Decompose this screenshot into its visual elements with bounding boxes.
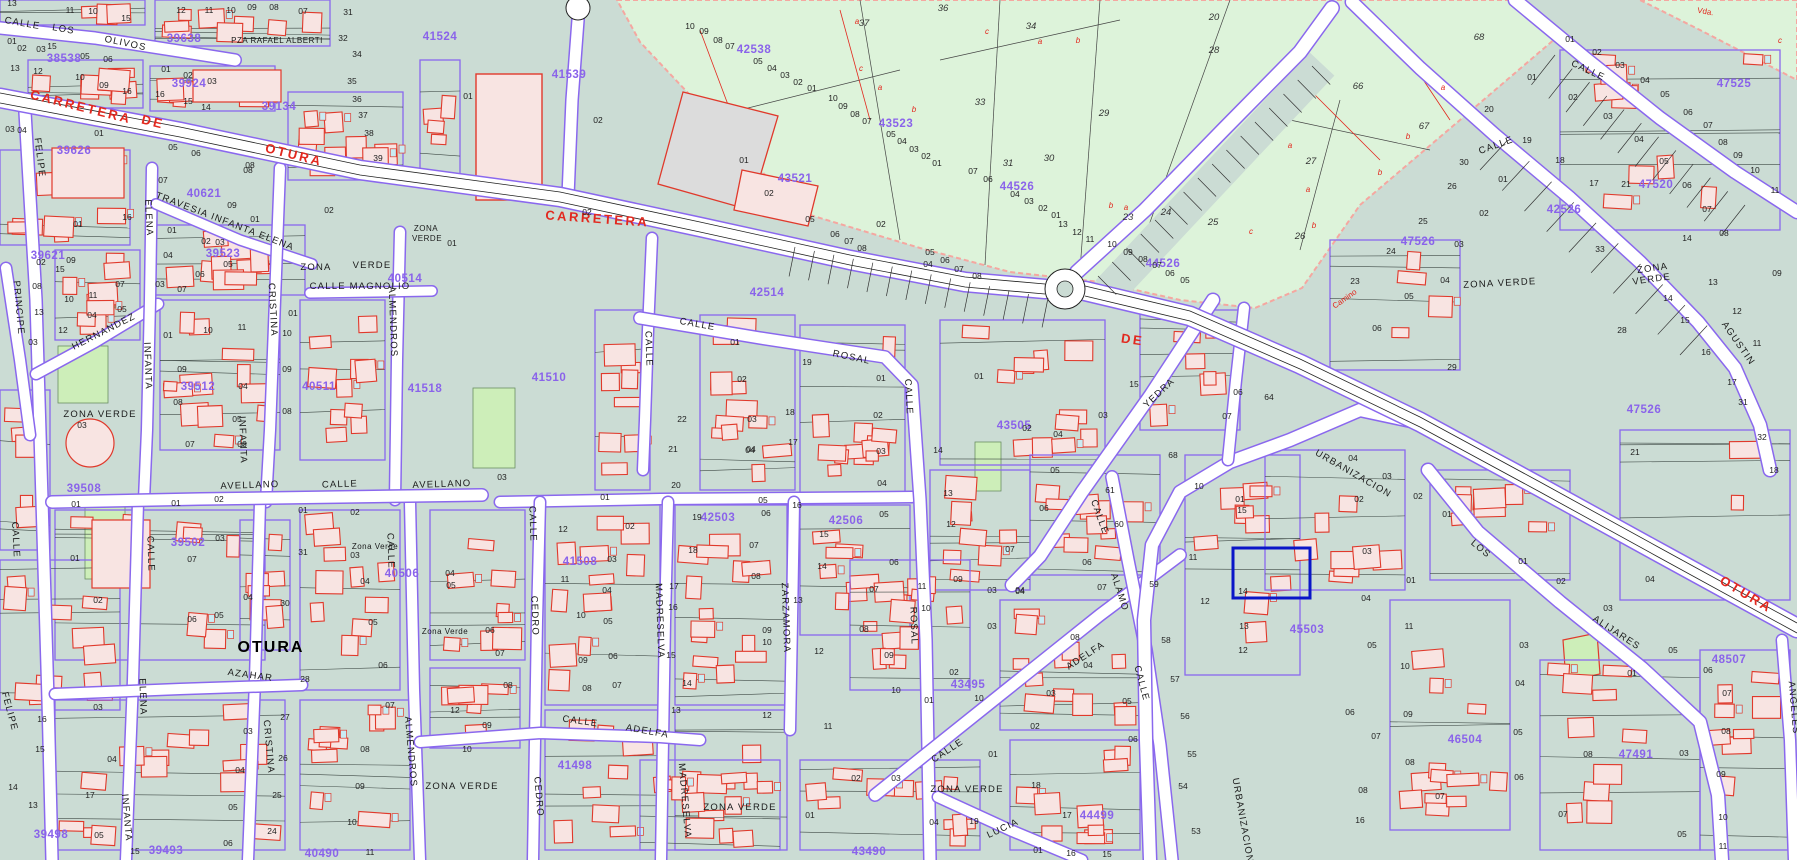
pool [1274, 487, 1280, 495]
parcel-number: 09 [578, 655, 588, 665]
parcel-number: 11 [824, 721, 833, 731]
street-label: ZONA VERDE [703, 802, 776, 813]
parcel-number: 06 [378, 660, 388, 670]
building [1053, 689, 1073, 702]
pool [1077, 439, 1083, 447]
building [719, 828, 733, 843]
street-label: CALLE [526, 506, 538, 542]
block-id-label: 39508 [67, 483, 102, 495]
building [1529, 522, 1547, 532]
building [1752, 697, 1780, 719]
building [601, 373, 619, 390]
parcel-number: 08 [243, 165, 253, 175]
parcel-number: 08 [282, 406, 292, 416]
parcel-number: 12 [946, 519, 956, 529]
parcel-number: 12 [1238, 645, 1248, 655]
parcel-number: 03 [987, 585, 997, 595]
cadastral-map[interactable]: CALLELOSOLIVOSPZA RAFAEL ALBERTIFELIPEPR… [0, 0, 1797, 860]
parcel-number: 08 [713, 35, 723, 45]
parcel-number: 14 [933, 445, 943, 455]
parcel-number: 11 [1086, 234, 1095, 244]
street-label: ROSAL [907, 607, 919, 646]
rural-parcel-number: 33 [975, 97, 986, 108]
building [268, 20, 287, 36]
building [358, 811, 391, 827]
pool [462, 639, 468, 647]
building [952, 814, 967, 836]
street-label: AVELLANO [220, 479, 279, 492]
parcel-number: 05 [94, 830, 104, 840]
parcel-number: 01 [730, 337, 740, 347]
building [1194, 535, 1218, 550]
parcel-number: 02 [214, 494, 224, 504]
parcel-number: 05 [228, 802, 238, 812]
parcel-number: 23 [1350, 276, 1360, 286]
building [828, 464, 842, 476]
parcel-number: 06 [485, 625, 495, 635]
parcel-number: 03 [93, 702, 103, 712]
parcel-number: 59 [1149, 579, 1159, 589]
parcel-number: 03 [891, 773, 901, 783]
street-label: VERDE [353, 260, 392, 271]
building [1294, 539, 1318, 561]
parcel-number: 04 [1640, 75, 1650, 85]
parcel-number: 08 [1358, 785, 1368, 795]
parcel-number: 02 [1022, 423, 1032, 433]
parcel-number: 14 [8, 782, 18, 792]
parcel-number: 20 [1484, 104, 1494, 114]
building [592, 805, 619, 823]
parcel-number: 03 [607, 554, 617, 564]
street[interactable] [500, 497, 912, 502]
block-id-label: 39498 [34, 829, 69, 841]
parcel-number: 03 [1024, 196, 1034, 206]
pool [1145, 503, 1151, 511]
parcel-number: 08 [1070, 632, 1080, 642]
block-id-label: 43490 [852, 846, 886, 858]
building [1563, 674, 1593, 695]
building [1150, 404, 1168, 426]
building [872, 428, 897, 443]
parcel-number: 03 [1603, 111, 1613, 121]
building [1065, 341, 1093, 361]
pool [325, 793, 331, 801]
parcel-number: 10 [64, 294, 74, 304]
building [493, 627, 522, 649]
parcel-number: 07 [177, 284, 187, 294]
building [1250, 486, 1272, 497]
parcel-number: 06 [830, 229, 840, 239]
building [1412, 649, 1445, 670]
parcel-number: 15 [183, 96, 193, 106]
block-id-label: 41524 [423, 31, 458, 43]
rural-subparcel-letter: a [878, 83, 883, 92]
parcel-number: 07 [612, 680, 622, 690]
pool [1481, 775, 1487, 783]
parcel-number: 09 [1123, 247, 1133, 257]
parcel-number: 10 [762, 637, 772, 647]
parcel-number: 03 [28, 337, 38, 347]
parcel-number: 17 [1062, 810, 1072, 820]
rural-subparcel-letter: c [859, 64, 863, 73]
parcel-number: 06 [1082, 557, 1092, 567]
building [163, 381, 177, 391]
parcel-number: 18 [688, 545, 698, 555]
parcel-number: 03 [215, 533, 225, 543]
parcel-number: 04 [445, 568, 455, 578]
parcel-number: 07 [749, 540, 759, 550]
rural-parcel-number: 25 [1207, 217, 1219, 228]
block-id-label: 44499 [1080, 810, 1114, 822]
block-id-label: 40490 [305, 848, 339, 860]
parcel-number: 08 [1719, 228, 1729, 238]
rural-subparcel-letter: c [985, 27, 989, 36]
parcel-number: 08 [582, 683, 592, 693]
parcel-number: 07 [385, 700, 395, 710]
parcel-number: 24 [267, 826, 277, 836]
parcel-number: 06 [608, 651, 618, 661]
parcel-number: 02 [851, 773, 861, 783]
block-id-label: 38538 [47, 53, 82, 65]
road-name-label: DE [1120, 331, 1145, 349]
parcel-number: 05 [1367, 640, 1377, 650]
parcel-number: 01 [932, 158, 942, 168]
parcel-number: 07 [298, 6, 308, 16]
building [1567, 803, 1583, 823]
pool [28, 588, 34, 596]
parcel-number: 10 [282, 328, 292, 338]
building [355, 359, 377, 383]
building [1593, 689, 1617, 700]
rural-subparcel-letter: b [1076, 36, 1081, 45]
pool [1634, 196, 1640, 204]
parcel-number: 18 [1031, 780, 1041, 790]
building [1568, 717, 1594, 737]
block-id-label: 39638 [167, 33, 202, 45]
parcel-number: 11 [918, 581, 927, 591]
block-id-label: 41539 [552, 69, 586, 81]
building [1064, 537, 1088, 552]
block-id-label: 41498 [558, 760, 593, 772]
parcel-number: 06 [187, 614, 197, 624]
parcel-number: 09 [762, 625, 772, 635]
building [608, 765, 628, 779]
parcel-number: 61 [1105, 485, 1115, 495]
parcel-number: 03 [987, 621, 997, 631]
parcel-number: 05 [232, 414, 242, 424]
roundabout[interactable] [566, 0, 590, 20]
parcel-number: 10 [1718, 812, 1728, 822]
block-id-label: 47491 [1619, 749, 1654, 761]
building [599, 433, 621, 452]
parcel-number: 09 [177, 364, 187, 374]
parcel-number: 08 [1718, 137, 1728, 147]
parcel-number: 01 [167, 225, 177, 235]
pool [769, 417, 775, 425]
building [1407, 251, 1421, 270]
parcel-number: 10 [1400, 661, 1410, 671]
parcel-number: 08 [1405, 757, 1415, 767]
block-id-label: 42503 [701, 512, 735, 524]
building [197, 405, 222, 427]
parcel-number: 12 [1732, 306, 1742, 316]
rural-parcel-number: 67 [1419, 121, 1430, 132]
parcel-number: 07 [158, 175, 168, 185]
building [227, 535, 240, 557]
building [1490, 772, 1508, 791]
building [943, 550, 961, 564]
parcel-number: 04 [923, 259, 933, 269]
parcel-number: 37 [358, 110, 368, 120]
building [1587, 801, 1612, 824]
building [962, 325, 989, 339]
building [468, 539, 494, 551]
block-id-label: 48507 [1712, 654, 1746, 666]
building [733, 830, 753, 847]
building [1731, 495, 1743, 510]
parcel-number: 01 [70, 553, 80, 563]
parcel-number: 08 [1721, 726, 1731, 736]
building [578, 637, 591, 656]
parcel-number: 16 [668, 602, 678, 612]
parcel-number: 03 [1519, 640, 1529, 650]
parcel-number: 04 [360, 576, 370, 586]
parcel-number: 01 [1498, 174, 1508, 184]
street-label: INFANTA [141, 342, 154, 390]
parcel-number: 01 [250, 214, 260, 224]
building [697, 545, 729, 558]
parcel-number: 04 [107, 754, 117, 764]
building [83, 644, 115, 665]
parcel-number: 10 [828, 93, 838, 103]
parcel-number: 08 [269, 2, 279, 12]
building [1204, 372, 1216, 386]
parcel-number: 19 [802, 357, 812, 367]
parcel-number: 05 [886, 129, 896, 139]
parcel-number: 13 [1239, 621, 1249, 631]
street-label: CEDRO [528, 596, 540, 637]
parcel-number: 10 [974, 693, 984, 703]
parcel-number: 08 [32, 281, 42, 291]
street-label: CALLE [9, 522, 22, 559]
parcel-number: 01 [1565, 34, 1575, 44]
parcel-number: 01 [807, 83, 817, 93]
parcel-number: 05 [117, 304, 127, 314]
parcel-number: 07 [1371, 731, 1381, 741]
building [548, 670, 570, 691]
cadastral-map-viewport[interactable]: CALLELOSOLIVOSPZA RAFAEL ALBERTIFELIPEPR… [0, 0, 1797, 860]
parcel-number: 01 [463, 91, 473, 101]
building [1715, 704, 1735, 718]
building [71, 517, 93, 529]
rural-subparcel-letter: b [1109, 201, 1114, 210]
parcel-number: 17 [1589, 178, 1599, 188]
parcel-number: 06 [983, 174, 993, 184]
parcel-number: 10 [462, 744, 472, 754]
parcel-number: 09 [66, 255, 76, 265]
parcel-number: 09 [99, 80, 109, 90]
parcel-number: 08 [850, 109, 860, 119]
parcel-number: 06 [195, 269, 205, 279]
parcel-number: 03 [1362, 546, 1372, 556]
pool [1629, 66, 1635, 74]
parcel-number: 01 [1627, 668, 1637, 678]
parcel-number: 13 [793, 595, 803, 605]
building [358, 316, 377, 333]
building [225, 272, 257, 285]
parcel-number: 19 [692, 512, 702, 522]
parcel-number: 08 [859, 624, 869, 634]
building [365, 597, 388, 613]
parcel-number: 15 [1680, 315, 1690, 325]
parcel-number: 02 [1030, 721, 1040, 731]
building [549, 644, 577, 668]
street-label: ZONA [300, 262, 331, 273]
rural-subparcel-letter: b [1312, 221, 1317, 230]
parcel-number: 07 [1435, 791, 1445, 801]
parcel-number: 21 [668, 444, 678, 454]
building [1088, 825, 1104, 835]
building [310, 792, 324, 810]
pool [1107, 834, 1113, 842]
parcel-number: 09 [884, 650, 894, 660]
parcel-number: 03 [207, 76, 217, 86]
parcel-number: 02 [921, 151, 931, 161]
rural-subparcel-letter: c [1778, 36, 1782, 45]
parcel-number: 01 [298, 505, 308, 515]
building [959, 528, 986, 546]
building [1447, 773, 1479, 787]
pool [1549, 523, 1555, 531]
rural-parcel-number: 24 [1160, 207, 1172, 218]
parcel-number: 28 [300, 674, 310, 684]
parcel-number: 25 [272, 790, 282, 800]
parcel-number: 03 [5, 124, 15, 134]
building [554, 820, 573, 843]
parcel-number: 34 [352, 49, 362, 59]
parcel-number: 03 [747, 414, 757, 424]
pool [774, 782, 780, 790]
building [1103, 758, 1128, 771]
parcel-number: 24 [1386, 246, 1396, 256]
building [597, 516, 623, 530]
parcel-number: 05 [80, 51, 90, 61]
building [141, 756, 167, 777]
parcel-number: 15 [121, 13, 131, 23]
building [1014, 358, 1044, 373]
building [214, 434, 234, 447]
block-id-label: 47526 [1401, 236, 1435, 248]
parcel-number: 04 [1440, 275, 1450, 285]
rural-subparcel-letter: a [1038, 37, 1043, 46]
pool [360, 637, 366, 645]
parcel-number: 08 [751, 571, 761, 581]
building [1447, 796, 1467, 807]
building [324, 547, 346, 561]
parcel-number: 03 [497, 472, 507, 482]
parcel-number: 06 [1683, 107, 1693, 117]
building [20, 495, 32, 508]
parcel-number: 02 [350, 507, 360, 517]
parcel-number: 32 [338, 33, 348, 43]
street-label: Zona Verde [422, 627, 468, 636]
parcel-number: 05 [603, 616, 613, 626]
parcel-number: 04 [238, 381, 248, 391]
street-label: ELENA [142, 199, 155, 237]
block-id-label: 47526 [1627, 404, 1661, 416]
building [1430, 678, 1444, 693]
parcel-number: 05 [1668, 645, 1678, 655]
parcel-number: 19 [1522, 135, 1532, 145]
street-label: CALLE [144, 536, 156, 572]
building [1733, 729, 1753, 738]
building [978, 545, 1001, 566]
parcel-number: 01 [924, 695, 934, 705]
street[interactable] [52, 495, 482, 502]
parcel-number: 16 [155, 89, 165, 99]
parcel-number: 01 [988, 749, 998, 759]
parcel-number: 05 [879, 509, 889, 519]
rural-parcel-number: 29 [1098, 108, 1110, 119]
building [266, 605, 284, 628]
building [806, 783, 827, 801]
building [622, 370, 638, 389]
parcel-number: 06 [1345, 707, 1355, 717]
pool [228, 630, 234, 638]
parcel-number: 01 [171, 498, 181, 508]
building [1622, 729, 1647, 743]
building [304, 111, 318, 128]
block-id-label: 41508 [563, 556, 598, 568]
parcel-number: 16 [1701, 347, 1711, 357]
parcel-number: 08 [1138, 254, 1148, 264]
building [602, 463, 628, 475]
parcel-number: 01 [600, 492, 610, 502]
parcel-number: 13 [7, 0, 17, 8]
parcel-number: 05 [1513, 727, 1523, 737]
parcel-number: 03 [155, 279, 165, 289]
parcel-number: 09 [1716, 769, 1726, 779]
building [44, 216, 74, 237]
parcel-number: 36 [352, 94, 362, 104]
block-id-label: 40511 [302, 381, 336, 393]
building [589, 574, 614, 585]
parcel-number: 07 [968, 166, 978, 176]
parcel-number: 06 [1682, 180, 1692, 190]
parcel-number: 15 [666, 650, 676, 660]
parcel-number: 05 [753, 56, 763, 66]
block-id-label: 39493 [149, 845, 183, 857]
parcel-number: 07 [115, 279, 125, 289]
building [341, 635, 358, 655]
parcel-number: 12 [1072, 227, 1082, 237]
building [1603, 194, 1632, 209]
parcel-number: 05 [223, 259, 233, 269]
building [583, 593, 611, 612]
parcel-number: 06 [191, 148, 201, 158]
parcel-number: 11 [366, 847, 375, 857]
parcel-number: 29 [1447, 362, 1457, 372]
parcel-number: 10 [226, 5, 236, 15]
building [189, 730, 208, 746]
pool [392, 814, 398, 822]
parcel-number: 04 [897, 136, 907, 146]
building [1000, 530, 1017, 543]
green-zone [473, 388, 515, 468]
block-id-label: 46504 [1448, 734, 1483, 746]
parcel-number: 02 [582, 207, 592, 217]
pool [390, 149, 396, 157]
